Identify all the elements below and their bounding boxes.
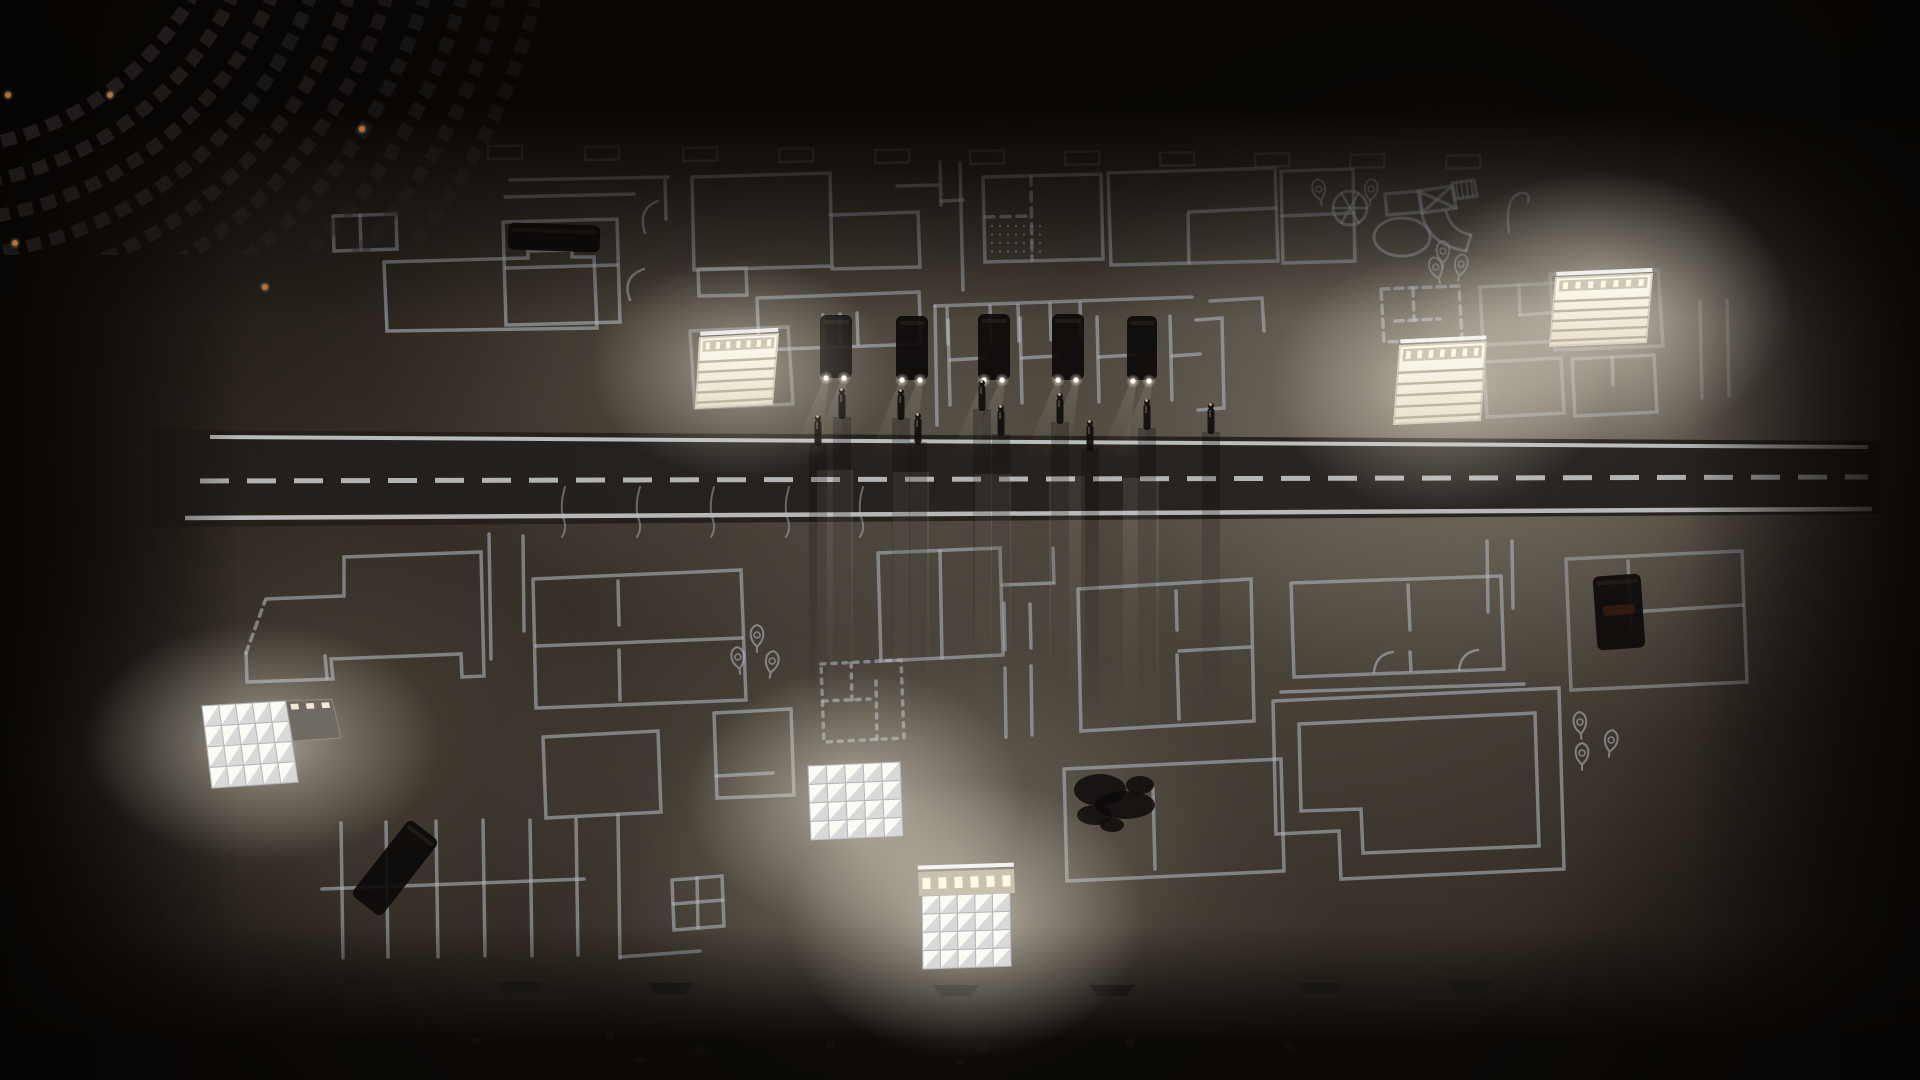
panel-slot — [716, 342, 721, 349]
panel-slot — [986, 876, 994, 888]
orange-led — [12, 240, 18, 246]
audience-head — [605, 1032, 615, 1039]
panel-slot — [1428, 350, 1433, 358]
panel-slot — [1613, 280, 1619, 287]
panel-slot — [1406, 351, 1411, 359]
panel-slot — [736, 341, 741, 348]
monitor-wedge — [345, 980, 391, 991]
panel-slot — [1474, 348, 1479, 356]
panel-slot — [757, 340, 762, 347]
panel-slot — [321, 702, 330, 708]
stage-light-panel-a — [696, 330, 778, 408]
panel-slot — [767, 339, 772, 346]
stage-scene[interactable] — [0, 0, 1920, 1080]
audience-head — [755, 1019, 765, 1026]
panel-slot — [726, 341, 731, 348]
panel-slot — [1417, 350, 1422, 358]
audience-head — [1285, 1044, 1295, 1051]
audience-head — [415, 1022, 425, 1029]
audience-head — [955, 1059, 965, 1066]
monitor-wedge — [497, 982, 543, 993]
panel-slot — [922, 878, 930, 890]
panel-slot — [1626, 280, 1632, 287]
panel-top-bar — [918, 869, 1015, 896]
audience-head — [635, 1057, 645, 1064]
stage-light-panel-c — [1550, 270, 1652, 346]
panel-slot — [746, 340, 751, 347]
panel-slot — [306, 703, 315, 709]
audience-head — [1125, 1039, 1135, 1046]
panel-slot — [1002, 875, 1010, 887]
stage-light-panel-f — [918, 865, 1015, 969]
panel-slot — [938, 877, 946, 889]
stage-light-panel-b — [1394, 337, 1486, 424]
panel-slot — [290, 704, 299, 710]
right-darkness — [1690, 0, 1920, 1080]
audience-head — [1205, 1027, 1215, 1034]
orange-led — [107, 92, 113, 98]
audience-head — [825, 1042, 835, 1049]
panel-slot — [1588, 281, 1594, 288]
panel-slot — [1638, 279, 1644, 286]
panel-slot — [1563, 282, 1569, 289]
panel-slot — [705, 342, 710, 349]
monitor-wedge — [1447, 981, 1493, 992]
panel-slot — [1600, 281, 1606, 288]
orange-led — [5, 92, 11, 98]
audience-head — [695, 1047, 705, 1054]
audience-head — [525, 1015, 535, 1022]
monitor-wedge — [1297, 983, 1343, 994]
panel-slot — [1451, 349, 1456, 357]
panel-slot — [1462, 348, 1467, 356]
stage-light-panel-e — [808, 762, 903, 840]
orange-led — [359, 126, 365, 132]
game-viewport[interactable] — [0, 0, 1920, 1080]
orange-led — [262, 284, 268, 290]
audience-head — [470, 1037, 480, 1044]
panel-slot — [970, 876, 978, 888]
monitor-wedge — [647, 983, 693, 994]
panel-slot — [1440, 349, 1445, 357]
panel-slot — [954, 877, 962, 889]
panel-slot — [1575, 282, 1581, 289]
